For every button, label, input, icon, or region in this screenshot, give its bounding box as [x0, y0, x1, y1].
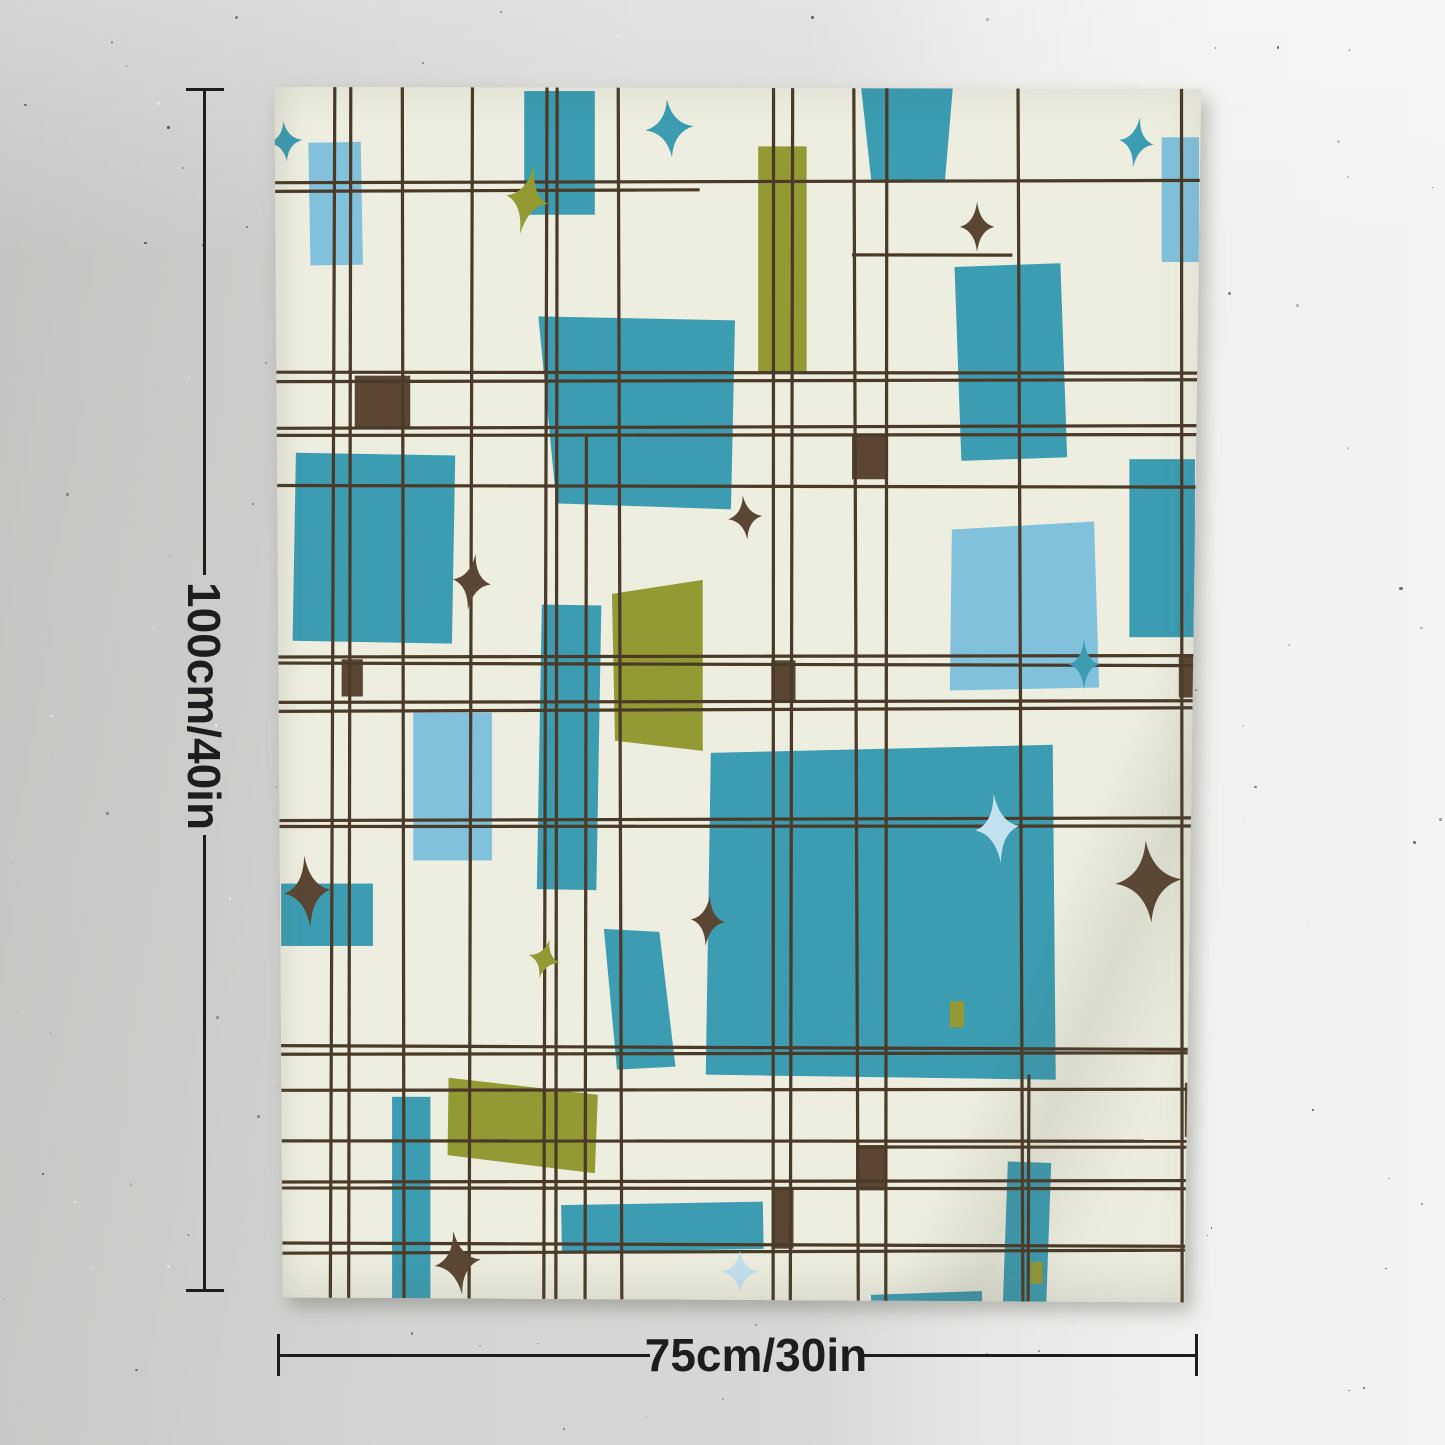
- fabric-fold-shading: [266, 84, 1202, 1306]
- tapestry: [266, 84, 1202, 1306]
- width-dimension-line: [278, 1354, 650, 1357]
- height-dimension-line: [203, 835, 206, 1291]
- height-dimension-cap-top: [186, 88, 224, 91]
- width-label: 75cm/30in: [640, 1331, 872, 1379]
- width-dimension-cap-left: [277, 1334, 280, 1376]
- height-label: 100cm/40in: [176, 578, 232, 834]
- block-brown-square: [1185, 1083, 1202, 1137]
- height-dimension-line: [203, 89, 206, 575]
- width-dimension-cap-right: [1195, 1334, 1198, 1376]
- product-photo: 100cm/40in 75cm/30in: [0, 0, 1445, 1445]
- width-dimension-line: [863, 1354, 1197, 1357]
- height-dimension-cap-bottom: [186, 1289, 224, 1292]
